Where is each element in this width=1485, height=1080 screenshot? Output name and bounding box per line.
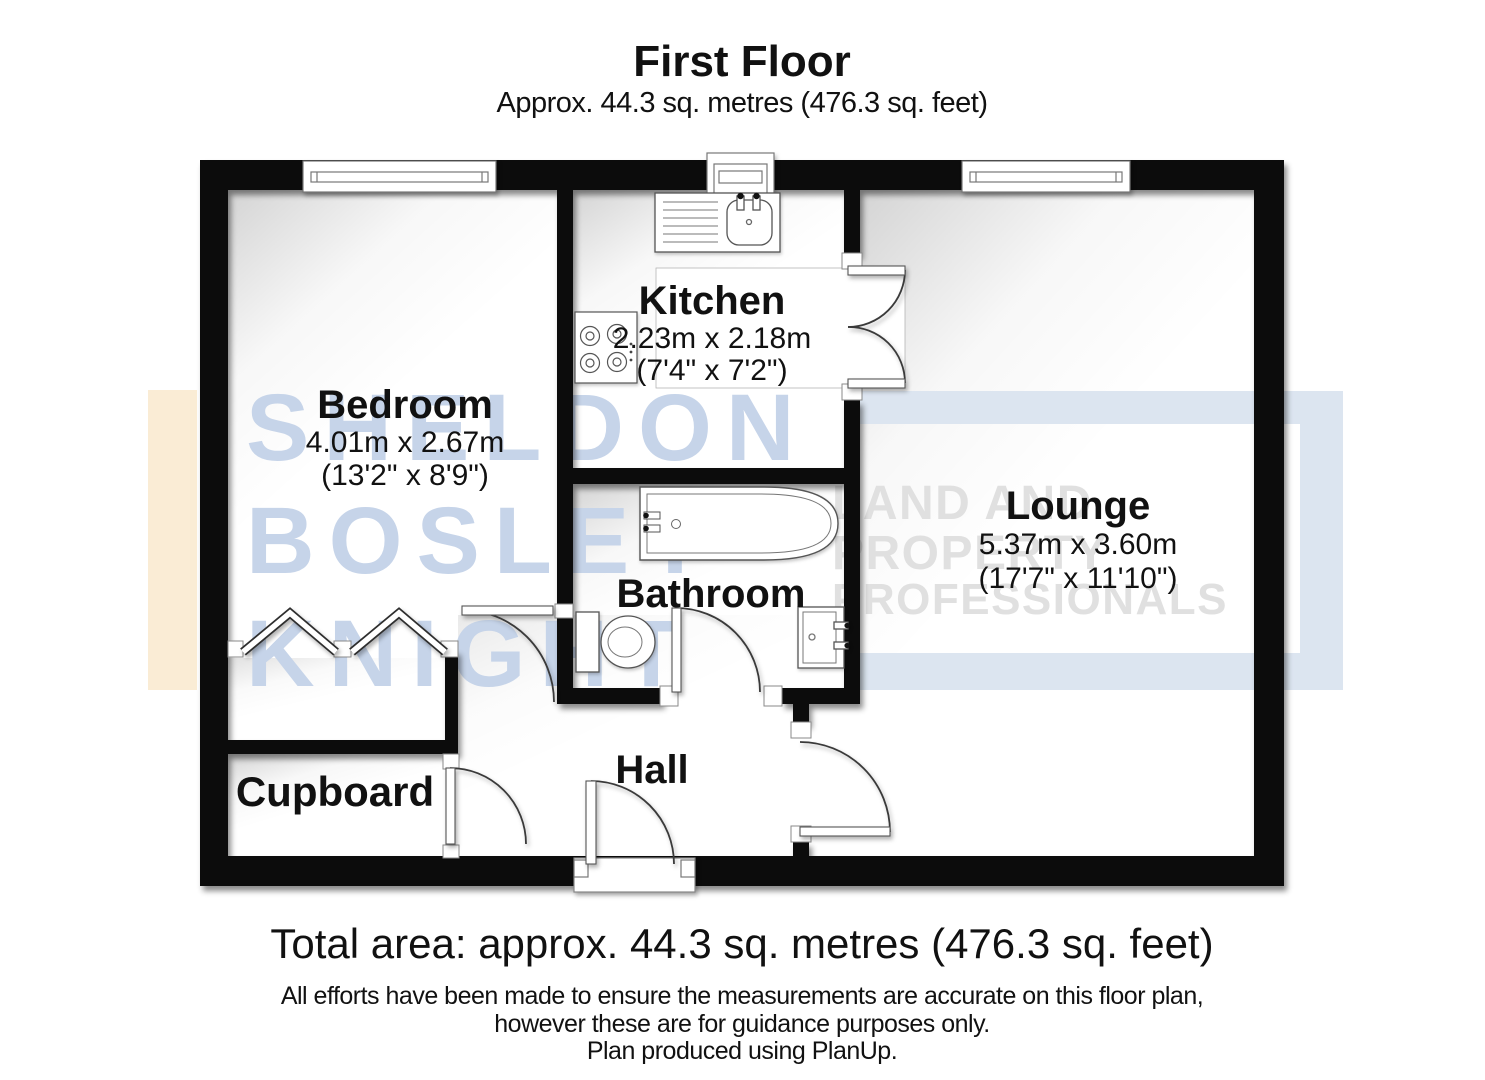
jamb-front-door-right [681, 860, 695, 877]
page-title: First Floor [633, 37, 851, 86]
toilet-cistern [576, 612, 599, 672]
jamb-bedroom-door [555, 604, 573, 618]
floor-plan-page: First Floor Approx. 44.3 sq. metres (476… [0, 0, 1485, 1080]
bathroom-label: Bathroom [617, 572, 806, 616]
wall-cupboard-top [228, 740, 458, 754]
bedroom-label: Bedroom [317, 383, 493, 427]
lounge-label: Lounge [1006, 484, 1150, 528]
front-door-leaf [586, 781, 596, 864]
bathtub [640, 487, 838, 560]
wall-kitchen-lounge-upper [844, 190, 860, 255]
bedroom-window [303, 161, 496, 192]
footer: Total area: approx. 44.3 sq. metres (476… [270, 920, 1213, 1065]
wall-bedroom-kitchen [557, 190, 573, 704]
kitchen-label: Kitchen [639, 279, 786, 323]
wall-exterior-left [200, 160, 228, 886]
lounge-window [962, 161, 1130, 192]
wall-hall-lounge-stub-top [793, 704, 809, 724]
kitchen-sink-unit [655, 193, 780, 252]
toilet [576, 612, 655, 672]
wall-exterior-right [1254, 160, 1284, 886]
jamb-lounge-top [791, 722, 811, 738]
jamb-cupboard-bottom [443, 845, 459, 858]
bathroom-door-leaf [672, 608, 681, 692]
total-area-text: Total area: approx. 44.3 sq. metres (476… [270, 920, 1213, 967]
hall-label: Hall [615, 748, 688, 792]
floor-plan-canvas: First Floor Approx. 44.3 sq. metres (476… [0, 0, 1485, 1080]
jamb-cupboard-top [443, 754, 459, 769]
wall-bathroom-bottom-left [557, 688, 662, 704]
wall-bathroom-lounge [844, 400, 860, 704]
basin [798, 607, 850, 668]
watermark-frame-right [1300, 391, 1343, 690]
wall-hall-lounge-stub-bottom [793, 842, 809, 858]
kitchen-dim-metric: 2.23m x 2.18m [613, 322, 811, 355]
kitchen-door-leaf-top [848, 266, 905, 275]
cupboard-door-leaf [446, 768, 455, 844]
wall-exterior-bottom [200, 856, 1284, 886]
sink-bowl [727, 200, 772, 245]
wall-bathroom-bottom-right [782, 688, 860, 704]
kitchen-dim-imperial: (7'4" x 7'2") [636, 354, 787, 387]
wall-bedroom-hall [445, 650, 458, 740]
kitchen-door-leaf-bottom [848, 379, 905, 388]
bedroom-door-leaf [462, 606, 553, 615]
jamb-bathroom-right [764, 686, 782, 706]
watermark-cream-bar [148, 390, 197, 690]
wall-kitchen-bathroom [557, 468, 860, 484]
cupboard-label: Cupboard [236, 768, 434, 815]
lounge-dim-imperial: (17'7" x 11'10") [979, 562, 1178, 595]
bedroom-dim-imperial: (13'2" x 8'9") [321, 459, 489, 492]
bedroom-dim-metric: 4.01m x 2.67m [306, 426, 504, 459]
disclaimer-line-1: All efforts have been made to ensure the… [281, 982, 1203, 1010]
lounge-door-leaf [800, 827, 890, 836]
plan-credit-text: Plan produced using PlanUp. [587, 1037, 897, 1065]
disclaimer-line-2: however these are for guidance purposes … [494, 1010, 989, 1038]
lounge-dim-metric: 5.37m x 3.60m [979, 528, 1177, 561]
page-subtitle: Approx. 44.3 sq. metres (476.3 sq. feet) [497, 87, 988, 119]
